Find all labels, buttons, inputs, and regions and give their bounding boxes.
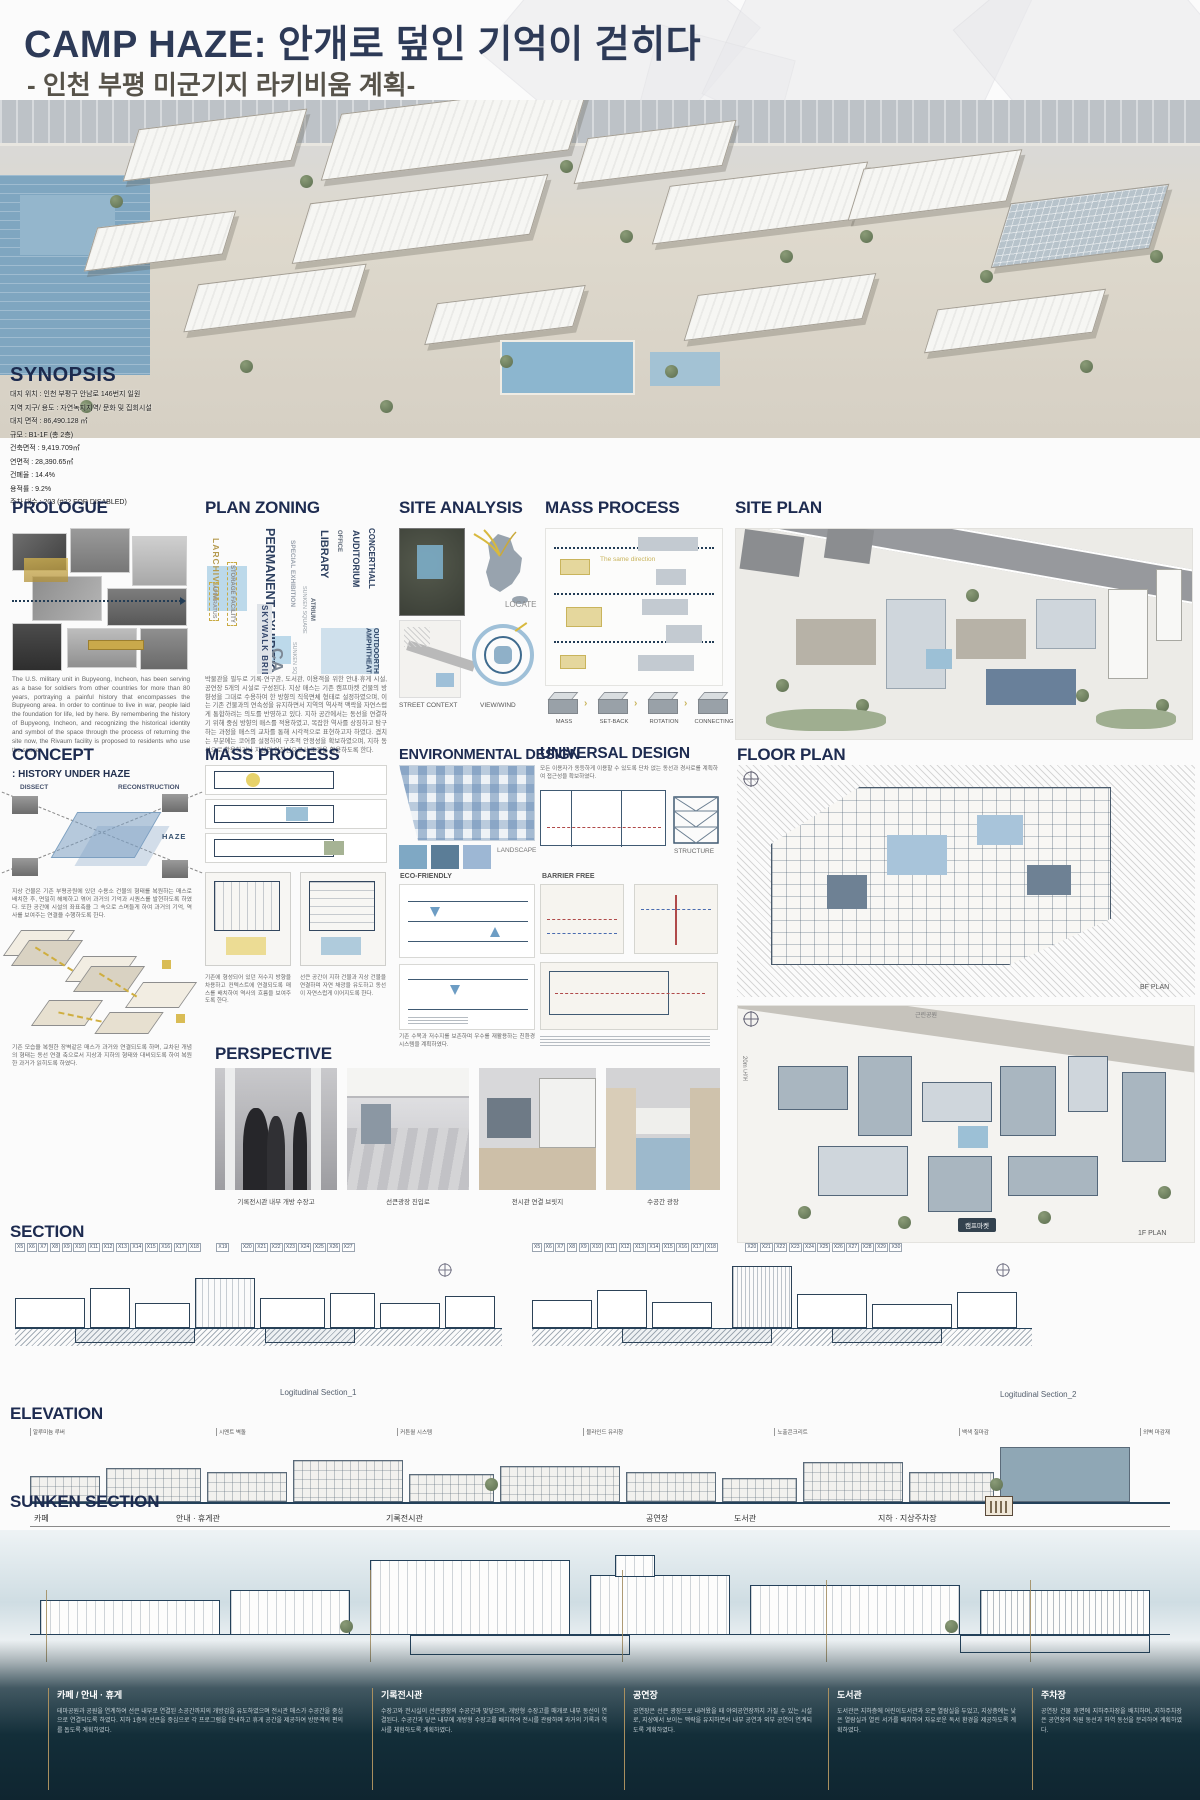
axis-label-haze: HAZE — [162, 832, 186, 841]
grid-label: X14 — [130, 1243, 143, 1252]
site-building — [1036, 599, 1096, 649]
elevation-block — [409, 1474, 494, 1502]
section-room — [445, 1296, 495, 1328]
column — [311, 1068, 321, 1190]
historic-photo — [32, 576, 102, 621]
memory-photo — [162, 860, 188, 878]
grid-label: X16 — [676, 1243, 689, 1252]
program-label: 지하 · 지상주차장 — [874, 1513, 941, 1524]
program-column: 공연장 공연장은 선큰 광장으로 내려왔을 때 야외공연장까지 가질 수 있는 … — [624, 1688, 812, 1790]
page-subtitle: - 인천 부평 미군기지 라키비움 계획- — [27, 65, 415, 102]
highlight — [321, 937, 361, 955]
program-body: 테마공원과 공원을 연계하여 선큰 내부로 연결된 소공간까지의 개방감을 유도… — [57, 1708, 343, 1736]
grid-label: X12 — [102, 1243, 115, 1252]
tree-icon — [990, 1478, 1003, 1491]
fake-annotation — [408, 1017, 468, 1025]
tree-icon — [300, 175, 313, 188]
mass-gray — [638, 655, 694, 671]
gold-cube — [176, 1014, 185, 1023]
grid-label: X22 — [774, 1243, 787, 1252]
mass-cube-icon — [698, 692, 728, 716]
gold-signboard — [88, 640, 144, 650]
section-line — [408, 901, 528, 902]
grid-label: X7 — [38, 1243, 48, 1252]
section-room — [15, 1298, 85, 1328]
tree-icon — [860, 230, 873, 243]
tree-icon — [1150, 250, 1163, 263]
masonry-wall — [690, 1088, 720, 1190]
env-module-plan — [399, 765, 535, 841]
plan-building — [922, 1082, 992, 1122]
section-room — [330, 1293, 375, 1328]
section-room — [597, 1290, 647, 1328]
elevation-drawing — [30, 1442, 1170, 1504]
section-room — [260, 1298, 325, 1328]
stamp-glyphs — [990, 1501, 1010, 1513]
historic-photo — [70, 528, 130, 573]
grid-label: X6 — [27, 1243, 37, 1252]
longitudinal-section-2 — [532, 1258, 1032, 1350]
heading-perspective: PERSPECTIVE — [215, 1044, 332, 1064]
plan-outline — [214, 839, 334, 857]
synopsis-line: 지역 지구/ 용도 : 자연녹지지역/ 문화 및 집회시설 — [10, 403, 310, 415]
building-block — [684, 273, 877, 341]
tree-icon — [780, 250, 793, 263]
plan-thumb — [205, 765, 387, 795]
building-block — [848, 149, 1023, 221]
tree-icon — [1076, 689, 1089, 702]
concept-caption-1: 지상 건물은 기존 부평공원에 있던 수용소 건물의 형태를 복원하는 매스로 … — [12, 888, 192, 920]
plan-blue-zone — [887, 835, 947, 875]
perspective-caption: 기록전시관 내부 개방 수장고 — [215, 1196, 337, 1206]
synopsis-line: 연면적 : 28,390.65㎡ — [10, 457, 310, 469]
heading-mass-process-2: MASS PROCESS — [205, 745, 340, 765]
view-wind-diagram — [468, 622, 538, 696]
tree-icon — [966, 589, 979, 602]
grid-label: X28 — [861, 1243, 874, 1252]
fake-annotation — [540, 1036, 710, 1046]
soldier-silhouettes — [24, 558, 68, 582]
section-line — [408, 1009, 528, 1010]
compass-icon — [742, 1010, 760, 1028]
section-line — [408, 979, 528, 980]
tree-icon — [380, 400, 393, 413]
building-block — [652, 162, 868, 245]
perspective-caption: 수공간 광장 — [606, 1196, 720, 1206]
grid-label: X18 — [188, 1243, 201, 1252]
section-room — [872, 1304, 952, 1328]
env-photo — [399, 845, 427, 869]
heading-floor-plan: FLOOR PLAN — [737, 745, 846, 765]
mass-yellow — [560, 559, 590, 575]
env-photo — [463, 845, 491, 869]
hatch-area — [404, 627, 430, 647]
highlight — [226, 937, 266, 955]
historic-photo — [140, 628, 188, 670]
zoning-word: SUNKEN SQUARE — [301, 586, 307, 634]
direction-arrow — [554, 593, 714, 595]
zoning-word: CONCERTHALL — [367, 528, 376, 589]
memory-photo — [12, 858, 38, 876]
universal-section-diagram — [540, 790, 666, 846]
site-patch — [436, 673, 454, 687]
grid-labels-left: X5X6X7X8X9X10X11X12X13X14X15X16X17X18X19… — [15, 1243, 355, 1252]
heading-universal: UNIVERSAL DESIGN — [540, 745, 690, 763]
grid-label: X27 — [846, 1243, 859, 1252]
air-arrow — [490, 927, 500, 937]
program-column: 도서관 도서관은 지하층에 어린이도서관과 오픈 열람실을 두었고, 지상층에는… — [828, 1688, 1016, 1790]
label-rule — [30, 1526, 1170, 1527]
page-title: CAMP HAZE: 안개로 덮인 기억이 걷히다 — [24, 13, 701, 68]
tree-icon — [1080, 360, 1093, 373]
program-title: 주차장 — [1041, 1688, 1182, 1701]
grid-label: X12 — [619, 1243, 632, 1252]
grid-label: X27 — [342, 1243, 355, 1252]
building-block — [424, 285, 586, 345]
synopsis-line: 규모 : B1-1F (총 2층) — [10, 430, 310, 442]
mass2-caption-right: 선큰 공간이 지하 건물과 지상 건물을 연결하며 자연 채광을 유도하고 동선… — [300, 975, 386, 998]
mass-step-label: SET-BACK — [591, 719, 637, 725]
program-body: 도서관은 지하층에 어린이도서관과 오픈 열람실을 두었고, 지상층에는 낮은 … — [837, 1708, 1016, 1736]
section-room — [652, 1302, 712, 1328]
perspective-captions: 기록전시관 내부 개방 수장고선큰광장 진입로전시관 연결 브릿지수공간 광장 — [0, 1196, 1200, 1208]
archive-section — [370, 1560, 570, 1635]
grid-label: X9 — [62, 1243, 72, 1252]
elevation-glass-block — [1000, 1447, 1130, 1502]
heading-prologue: PROLOGUE — [12, 498, 108, 518]
program-description-band: 카페 / 안내 · 휴게 테마공원과 공원을 연계하여 선큰 내부로 연결된 소… — [0, 1640, 1200, 1800]
heading-mass-process-1: MASS PROCESS — [545, 498, 680, 518]
perspective-caption: 선큰광장 진입로 — [347, 1196, 469, 1206]
perspective-image-bridge — [479, 1068, 596, 1190]
ground-hatch — [15, 1328, 502, 1346]
historic-photo — [132, 536, 187, 586]
building-block — [321, 100, 590, 181]
synopsis-line: 대지 위치 : 인천 부평구 안남로 146번지 일원 — [10, 389, 310, 401]
bf-plan-area — [737, 765, 1195, 997]
flytower — [732, 1266, 792, 1328]
zoning-word: OUTDOORTHEATER AMPHITHEATER — [321, 628, 379, 674]
same-direction-note: The same direction — [600, 556, 655, 563]
wall-line — [621, 791, 622, 847]
tree-icon — [110, 195, 123, 208]
synopsis-block: SYNOPSIS 대지 위치 : 인천 부평구 안남로 146번지 일원지역 지… — [10, 364, 310, 509]
poster: CAMP HAZE: 안개로 덮인 기억이 걷히다 - 인천 부평 미군기지 라… — [0, 0, 1200, 1800]
material-label: 커튼월 시스템 — [397, 1428, 432, 1436]
highlight-blue — [286, 807, 308, 821]
gold-cube — [162, 960, 171, 969]
zoning-word: CAFE — [267, 648, 285, 674]
grid-label: X17 — [174, 1243, 187, 1252]
grid-label: X6 — [544, 1243, 554, 1252]
eco-friendly-label: ECO-FRIENDLY — [400, 873, 452, 880]
grid-label: X21 — [255, 1243, 268, 1252]
longitudinal-section-1 — [15, 1258, 502, 1350]
elevation-block — [909, 1472, 994, 1502]
grid-label: X19 — [216, 1243, 229, 1252]
mass-gray — [642, 599, 688, 615]
synopsis-lines: 대지 위치 : 인천 부평구 안남로 146번지 일원지역 지구/ 용도 : 자… — [10, 389, 310, 509]
street-context-label: STREET CONTEXT — [399, 702, 457, 709]
plan-building — [1000, 1066, 1056, 1136]
street-context-diagram — [399, 620, 461, 698]
tree-icon — [620, 230, 633, 243]
elevation-block — [207, 1472, 287, 1502]
context-block — [824, 528, 874, 564]
compass-icon — [742, 770, 760, 788]
grid-label: X25 — [313, 1243, 326, 1252]
road-label: 20m 도로 — [740, 1056, 749, 1081]
mass-yellow — [566, 607, 602, 627]
program-title: 공연장 — [633, 1688, 812, 1701]
grid-label: X18 — [705, 1243, 718, 1252]
wall-line — [571, 791, 572, 847]
grid-label: X15 — [662, 1243, 675, 1252]
program-title: 카페 / 안내 · 휴게 — [57, 1688, 343, 1701]
tree-icon — [665, 365, 678, 378]
structure-label: STRUCTURE — [674, 848, 714, 855]
material-label: 시멘트 벽돌 — [216, 1428, 246, 1436]
tree-icon — [500, 355, 513, 368]
grid-label: X17 — [691, 1243, 704, 1252]
historic-photo — [107, 588, 187, 626]
section-line — [408, 921, 528, 922]
site-building — [886, 599, 946, 689]
person-silhouette — [267, 1116, 285, 1190]
elevation-block — [722, 1478, 797, 1502]
memory-photo — [12, 796, 38, 814]
site-building — [956, 619, 1026, 659]
plan-building — [778, 1066, 848, 1110]
person-silhouette — [243, 1108, 269, 1190]
section-hall — [195, 1278, 255, 1328]
plan-zoning-body: 박물관을 필두로 기록·연구관, 도서관, 이용객을 위한 안내·휴게 시설, … — [205, 676, 387, 755]
concept-subtitle: : HISTORY UNDER HAZE — [12, 769, 130, 780]
site-highlight — [417, 545, 443, 579]
program-label: 도서관 — [730, 1513, 760, 1524]
glass-wall — [361, 1104, 391, 1144]
green-area — [766, 709, 886, 731]
site-plan-drawing — [735, 528, 1193, 740]
material-label: 외벽 마감재 — [1140, 1428, 1170, 1436]
axis-label-dissect: DISSECT — [20, 784, 48, 791]
plan-thumb — [205, 833, 387, 863]
route-line — [547, 919, 617, 920]
canopy — [347, 1068, 469, 1098]
zoning-word: OFFICE — [336, 530, 342, 552]
barrier-mini-plan — [540, 884, 624, 954]
mass-cube-icon — [598, 692, 628, 716]
ground-line — [30, 1634, 1170, 1635]
grid-label: X13 — [633, 1243, 646, 1252]
grid-label: X22 — [270, 1243, 283, 1252]
grid-labels-right: X5X6X7X8X9X10X11X12X13X14X15X16X17X18X20… — [532, 1243, 902, 1252]
bf-plan-label: BF PLAN — [1140, 984, 1169, 991]
grid-label: X10 — [73, 1243, 86, 1252]
route-line — [547, 933, 617, 934]
tree-icon — [1038, 1211, 1051, 1224]
plan-pool — [958, 1126, 988, 1148]
plan-core — [827, 875, 867, 909]
grid-label: X11 — [605, 1243, 618, 1252]
program-body: 공연장은 선큰 광장으로 내려왔을 때 야외공연장까지 가질 수 있는 시설로,… — [633, 1708, 812, 1736]
elevation-block — [626, 1472, 716, 1502]
site-building — [1108, 589, 1148, 679]
f1-plan-label: 1F PLAN — [1138, 1230, 1166, 1237]
zoning-word: SPECIAL EXHIBITION — [289, 540, 296, 607]
route-line — [555, 993, 705, 994]
tree-icon — [340, 1620, 353, 1633]
mass-slab — [94, 1012, 163, 1034]
zoning-word: AUDITORIUM — [351, 530, 361, 587]
theater-section — [590, 1575, 730, 1635]
mass-gray — [666, 625, 702, 643]
section-room — [380, 1303, 440, 1328]
historic-photo — [12, 623, 62, 671]
material-label: 백색 칠마감 — [959, 1428, 989, 1436]
material-label: 블라인드 유리창 — [583, 1428, 623, 1436]
grid-label: X23 — [284, 1243, 297, 1252]
elevation-block — [803, 1462, 903, 1502]
grid-label: X30 — [889, 1243, 902, 1252]
view-wind-label: VIEW/WIND — [480, 702, 516, 709]
perspective-caption: 전시관 연결 브릿지 — [479, 1196, 596, 1206]
tree-icon — [980, 270, 993, 283]
plan-grid — [214, 881, 280, 931]
white-path — [636, 1108, 690, 1134]
library-section — [750, 1585, 960, 1635]
route-line — [547, 827, 661, 828]
plan-core — [1027, 865, 1071, 895]
eco-section-diagram — [399, 964, 535, 1030]
building-block — [183, 264, 366, 333]
structure-truss-icon — [672, 795, 720, 845]
section-room — [532, 1300, 592, 1328]
zoning-word: LIBRARY — [318, 530, 330, 578]
step-arrow-icon: › — [584, 698, 587, 709]
plan-building — [818, 1146, 908, 1196]
section-caption-1: Logitudinal Section_1 — [280, 1388, 357, 1397]
perspective-image-watercourt — [606, 1068, 720, 1190]
grid-label: X26 — [832, 1243, 845, 1252]
mini-plan — [205, 872, 291, 966]
barrier-free-label: BARRIER FREE — [542, 873, 595, 880]
synopsis-heading: SYNOPSIS — [10, 364, 310, 387]
zoning-word: APPARATUS — [209, 582, 219, 621]
building-block — [292, 174, 549, 264]
mass-step-labels: MASSSET-BACKROTATIONCONNECTING — [541, 719, 741, 729]
program-label: 공연장 — [642, 1513, 672, 1524]
band-columns: 카페 / 안내 · 휴게 테마공원과 공원을 연계하여 선큰 내부로 연결된 소… — [0, 1640, 1200, 1800]
grid-label: X24 — [298, 1243, 311, 1252]
timeline-arrow — [12, 600, 184, 602]
locate-label: LOCATE — [505, 600, 536, 609]
grid-label: X10 — [590, 1243, 603, 1252]
program-body: 공연장 건물 후면에 지하주차장을 배치하며, 지하주차장은 공연장의 직원 동… — [1041, 1708, 1182, 1736]
person-silhouette — [293, 1112, 307, 1190]
concept-caption-2: 기존 모습을 복원한 장벽같은 매스가 과거와 연결되도록 하며, 교차된 개념… — [12, 1044, 192, 1068]
zoning-word: SUNKEN SQUARE — [291, 642, 297, 674]
heading-sunken: SUNKEN SECTION — [10, 1492, 159, 1512]
section-caption-2: Logitudinal Section_2 — [1000, 1390, 1077, 1399]
program-label: 카페 — [30, 1513, 53, 1524]
plan-outline — [214, 805, 334, 823]
elevation-block — [293, 1460, 403, 1502]
elevation-block — [500, 1466, 620, 1502]
perspective-image-storage — [215, 1068, 337, 1190]
program-title: 도서관 — [837, 1688, 1016, 1701]
grid-label: X20 — [241, 1243, 254, 1252]
grid-label: X13 — [116, 1243, 129, 1252]
sunken-program-labels: 카페안내 · 휴게관기록전시관공연장도서관지하 · 지상주차장 — [0, 1513, 1200, 1525]
grid-label: X8 — [567, 1243, 577, 1252]
tree-icon — [485, 1478, 498, 1491]
grid-label: X9 — [579, 1243, 589, 1252]
tree-icon — [776, 679, 789, 692]
program-column: 카페 / 안내 · 휴게 테마공원과 공원을 연계하여 선큰 내부로 연결된 소… — [48, 1688, 343, 1790]
compass-icon — [995, 1262, 1011, 1278]
heading-site-plan: SITE PLAN — [735, 498, 822, 518]
grid-label: X24 — [803, 1243, 816, 1252]
parking-building-section — [980, 1590, 1150, 1635]
green-area — [1096, 709, 1176, 729]
tan-deck — [479, 1148, 596, 1190]
step-arrow-icon: › — [684, 698, 687, 709]
tree-icon — [560, 160, 573, 173]
axis-label-reconstruction: RECONSTRUCTION — [118, 784, 179, 791]
program-label: 기록전시관 — [382, 1513, 427, 1524]
env-caption: 기존 수목과 저수지를 보존하며 우수를 재활용하는 친환경 시스템을 계획하였… — [399, 1034, 535, 1050]
window-band — [487, 1098, 531, 1138]
grid-label: X15 — [145, 1243, 158, 1252]
heading-plan-zoning: PLAN ZONING — [205, 498, 320, 518]
site-pool — [926, 649, 952, 669]
plan-building — [1068, 1056, 1108, 1112]
white-mass — [539, 1078, 596, 1148]
grid-label: X7 — [555, 1243, 565, 1252]
landscape-label: LANDSCAPE — [497, 847, 536, 854]
grid-label: X26 — [327, 1243, 340, 1252]
mass-gray — [656, 569, 686, 585]
step-arrow-icon: › — [634, 698, 637, 709]
material-label: 노출콘크리트 — [774, 1428, 807, 1436]
context-block — [740, 529, 805, 577]
plan-grid — [309, 881, 375, 931]
program-title: 기록전시관 — [381, 1688, 607, 1701]
highlight-circle — [246, 773, 260, 787]
compass-icon — [437, 1262, 453, 1278]
concept-mass-diagram — [12, 924, 192, 1038]
mass-step-label: MASS — [541, 719, 587, 725]
cafe-section — [40, 1600, 220, 1635]
grid-label: X23 — [789, 1243, 802, 1252]
flytower — [615, 1555, 655, 1577]
elevation-material-labels: 알루미늄 루버시멘트 벽돌커튼월 시스템블라인드 유리창노출콘크리트백색 칠마감… — [30, 1428, 1170, 1436]
park-label: 근린공원 — [915, 1010, 937, 1019]
plan-building — [1008, 1156, 1098, 1196]
zoning-word: ATRIUM — [309, 598, 315, 621]
grid-label: X14 — [647, 1243, 660, 1252]
plan-building — [858, 1056, 912, 1136]
lounge-section — [230, 1590, 350, 1635]
plan-blue-zone — [977, 815, 1023, 845]
synopsis-line: 건폐율 : 14.4% — [10, 470, 310, 482]
heading-concept: CONCEPT — [12, 745, 94, 765]
plan-thumb — [205, 799, 387, 829]
section-room — [797, 1294, 867, 1328]
zoning-word: STORAGE FACILITY — [227, 562, 237, 626]
program-label: 안내 · 휴게관 — [172, 1513, 224, 1524]
